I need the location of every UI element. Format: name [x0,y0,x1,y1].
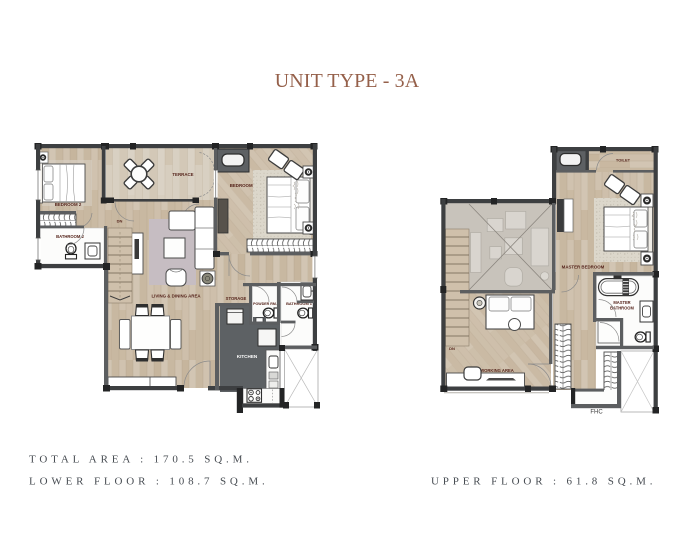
svg-text:WORKING AREA: WORKING AREA [480,368,514,373]
svg-text:DN: DN [449,346,455,351]
svg-text:BEDROOM 1: BEDROOM 1 [230,183,257,188]
svg-text:UPPER FLOOR : 61.8 SQ.M.: UPPER FLOOR : 61.8 SQ.M. [431,476,656,488]
svg-text:TERRACE: TERRACE [172,172,193,177]
svg-text:FHC: FHC [590,410,603,416]
svg-text:KITCHEN: KITCHEN [237,354,258,359]
svg-text:TOILET: TOILET [616,158,631,163]
svg-text:BEDROOM 2: BEDROOM 2 [55,202,82,207]
svg-text:MASTER BEDROOM: MASTER BEDROOM [562,265,605,270]
svg-text:LIVING & DINING AREA: LIVING & DINING AREA [151,294,201,299]
svg-text:LOWER FLOOR : 108.7 SQ.M.: LOWER FLOOR : 108.7 SQ.M. [29,476,269,488]
svg-text:UNIT TYPE - 3A: UNIT TYPE - 3A [275,70,420,92]
svg-text:TOTAL AREA : 170.5 SQ.M.: TOTAL AREA : 170.5 SQ.M. [29,454,253,466]
svg-text:DN: DN [117,219,123,224]
svg-text:STORAGE: STORAGE [226,296,247,301]
svg-text:MASTER: MASTER [613,300,630,305]
svg-text:POWDER RM.: POWDER RM. [253,302,277,306]
